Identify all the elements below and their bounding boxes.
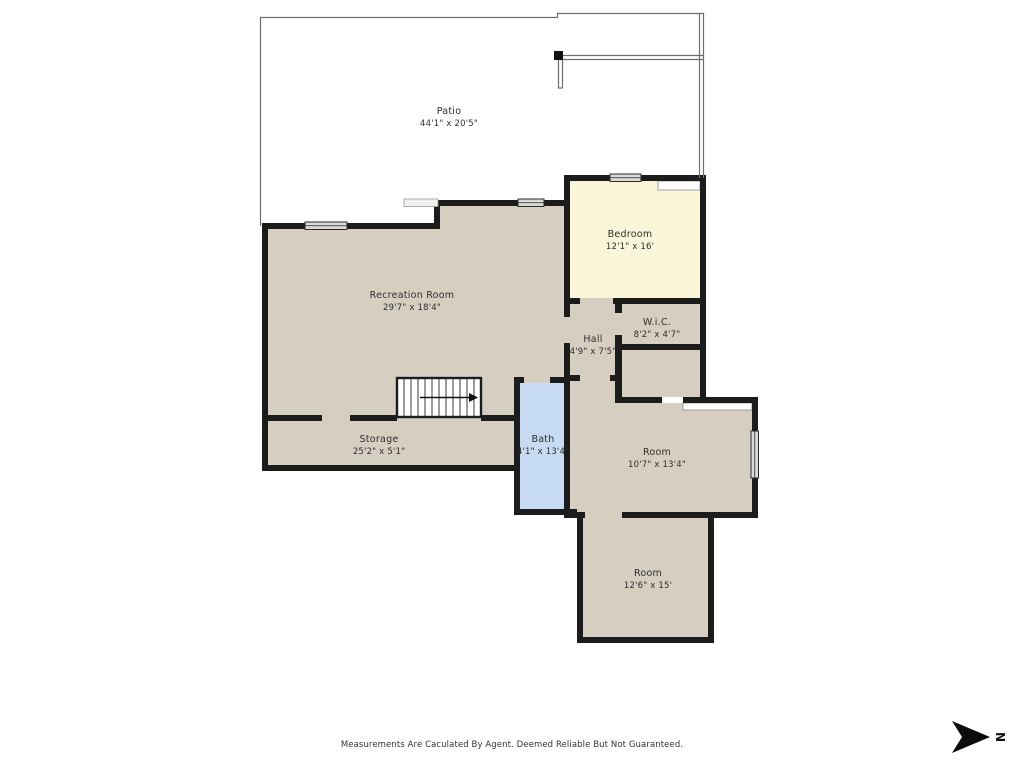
room-dims: 25'2" x 5'1" [353, 447, 405, 457]
room-dims: 12'1" x 16' [606, 242, 654, 252]
hall-door-gap-south [580, 375, 610, 381]
room-label-recreation-room: Recreation Room 29'7" x 18'4" [370, 290, 455, 313]
bedroom-door-gap [580, 298, 613, 304]
room-name: Patio [420, 106, 478, 117]
room-name: Bedroom [606, 229, 654, 240]
room-middle-fill-west [570, 381, 622, 512]
recreation-room-fill-step [440, 206, 564, 229]
room-dims: 44'1" x 20'5" [420, 119, 478, 129]
disclaimer-text: Measurements Are Caculated By Agent. Dee… [0, 740, 1024, 750]
room-label-hall: Hall 4'9" x 7'5" [570, 334, 617, 357]
room-name: Recreation Room [370, 290, 455, 301]
room-dims: 4'9" x 7'5" [570, 347, 617, 357]
room-dims: 12'6" x 15' [624, 581, 672, 591]
room-label-bath: Bath 4'1" x 13'4" [517, 434, 569, 457]
room-label-bedroom: Bedroom 12'1" x 16' [606, 229, 654, 252]
room-name: Storage [353, 434, 405, 445]
room-label-room-middle: Room 10'7" x 13'4" [628, 447, 686, 470]
bedroom-soffit [658, 181, 700, 190]
room-dims: 10'7" x 13'4" [628, 460, 686, 470]
room-name: Bath [517, 434, 569, 445]
wic-door-gap [615, 313, 622, 335]
room-name: W.i.C. [634, 317, 681, 328]
nook-fill [622, 350, 700, 397]
room-dims: 8'2" x 4'7" [634, 330, 681, 340]
floor-plan-page: N Patio 44'1" x 20'5" Bedroom 12'1" x 16… [0, 0, 1024, 768]
room-lower-door-gap [585, 512, 622, 518]
room-dims: 29'7" x 18'4" [370, 303, 455, 313]
room-label-patio: Patio 44'1" x 20'5" [420, 106, 478, 129]
room-middle-soffit [683, 403, 752, 410]
railing-post [554, 51, 563, 60]
opening-icon [404, 199, 438, 207]
stairs-icon [397, 378, 481, 417]
patio-railing [554, 51, 703, 88]
floor-plan-canvas: N [0, 0, 1024, 768]
room-label-storage: Storage 25'2" x 5'1" [353, 434, 405, 457]
room-name: Hall [570, 334, 617, 345]
room-label-wic: W.i.C. 8'2" x 4'7" [634, 317, 681, 340]
room-label-room-lower: Room 12'6" x 15' [624, 568, 672, 591]
room-dims: 4'1" x 13'4" [517, 447, 569, 457]
room-name: Room [628, 447, 686, 458]
room-fills [268, 181, 752, 637]
room-name: Room [624, 568, 672, 579]
